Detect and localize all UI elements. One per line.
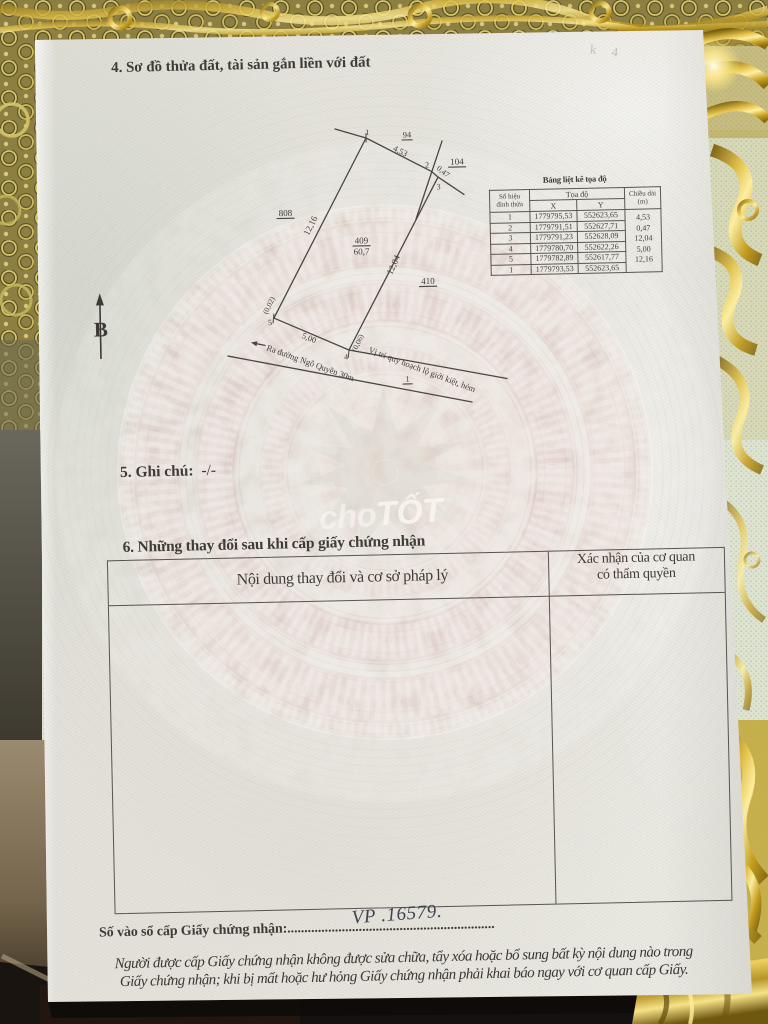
svg-text:Ra đường Ngô Quyền 30m: Ra đường Ngô Quyền 30m	[265, 342, 356, 383]
svg-text:5,00: 5,00	[300, 330, 318, 345]
svg-text:1: 1	[405, 374, 409, 383]
svg-text:3: 3	[436, 182, 440, 191]
svg-text:Vị trí quy hoạch lộ giới kiệt,: Vị trí quy hoạch lộ giới kiệt, hẻm	[367, 345, 477, 395]
svg-text:4,53: 4,53	[392, 143, 410, 159]
svg-text:808: 808	[279, 208, 293, 218]
svg-text:B: B	[94, 317, 109, 341]
svg-text:409: 409	[355, 235, 369, 245]
svg-text:(0,02): (0,02)	[261, 295, 277, 316]
svg-text:2: 2	[425, 160, 429, 169]
svg-text:60,7: 60,7	[354, 246, 370, 256]
svg-text:5: 5	[268, 318, 272, 327]
svg-text:94: 94	[403, 129, 412, 139]
svg-text:1: 1	[365, 128, 369, 137]
svg-text:12,04: 12,04	[385, 253, 403, 276]
svg-text:104: 104	[450, 156, 464, 166]
svg-text:410: 410	[421, 276, 435, 286]
svg-text:4: 4	[344, 352, 348, 361]
svg-text:(0,06): (0,06)	[350, 332, 366, 353]
